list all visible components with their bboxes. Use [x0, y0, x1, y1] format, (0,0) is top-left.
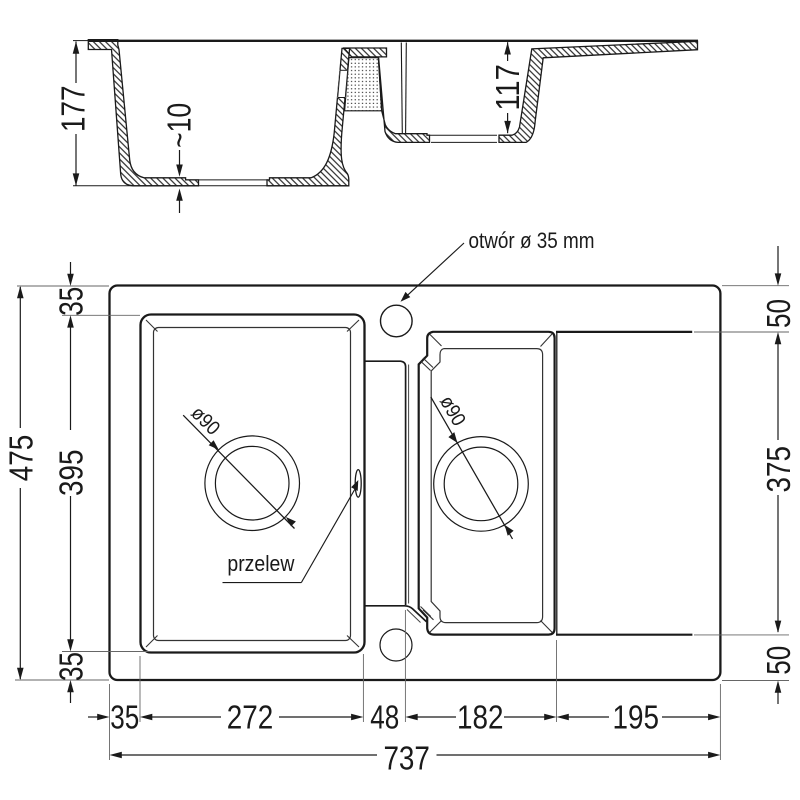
svg-text:395: 395 [54, 449, 91, 496]
svg-text:przelew: przelew [227, 551, 294, 576]
svg-text:182: 182 [457, 700, 504, 737]
svg-text:375: 375 [761, 446, 798, 493]
svg-text:177: 177 [55, 85, 92, 132]
svg-text:~10: ~10 [162, 103, 199, 148]
svg-text:ø90: ø90 [186, 402, 223, 439]
svg-text:117: 117 [490, 64, 527, 111]
svg-text:ø90: ø90 [435, 392, 470, 430]
svg-text:50: 50 [761, 646, 798, 675]
svg-text:48: 48 [370, 700, 399, 737]
svg-text:otwór ø 35 mm: otwór ø 35 mm [469, 228, 595, 253]
svg-text:475: 475 [4, 435, 41, 482]
svg-text:35: 35 [54, 652, 91, 681]
svg-text:35: 35 [110, 700, 139, 737]
svg-text:50: 50 [761, 299, 798, 328]
svg-text:195: 195 [613, 700, 660, 737]
svg-text:737: 737 [383, 740, 430, 777]
svg-text:35: 35 [54, 287, 91, 316]
svg-text:272: 272 [227, 700, 274, 737]
